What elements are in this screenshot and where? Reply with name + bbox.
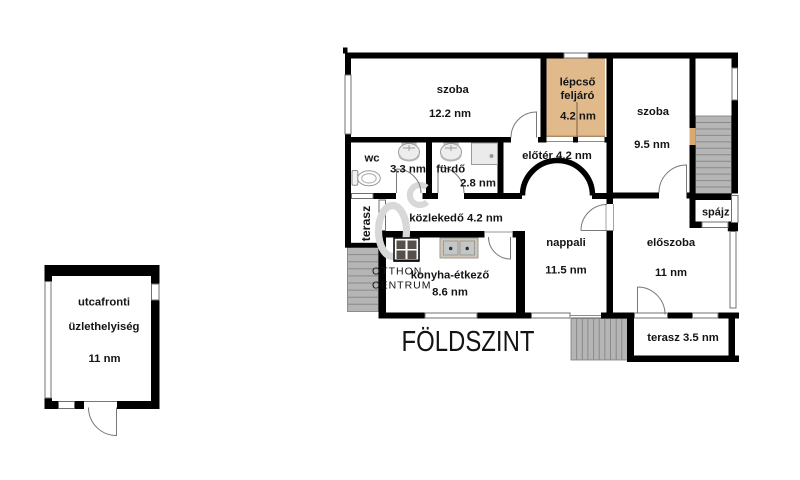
svg-text:12.2 nm: 12.2 nm	[429, 108, 471, 120]
svg-text:előtér 4.2 nm: előtér 4.2 nm	[522, 150, 592, 162]
svg-text:terasz 3.5 nm: terasz 3.5 nm	[647, 332, 719, 344]
svg-text:terasz: terasz	[359, 206, 373, 242]
svg-text:közlekedő 4.2 nm: közlekedő 4.2 nm	[409, 213, 503, 225]
svg-text:11 nm: 11 nm	[88, 353, 120, 365]
svg-text:nappali: nappali	[546, 237, 586, 249]
svg-text:szoba: szoba	[437, 84, 470, 96]
svg-text:spájz: spájz	[702, 207, 730, 219]
svg-text:4.2 nm: 4.2 nm	[560, 111, 596, 123]
svg-text:utcafronti: utcafronti	[78, 297, 130, 309]
svg-text:lépcső: lépcső	[560, 77, 596, 89]
svg-text:szoba: szoba	[637, 106, 670, 118]
svg-text:fürdő: fürdő	[436, 164, 465, 176]
svg-text:előszoba: előszoba	[647, 237, 696, 249]
svg-text:üzlethelyiség: üzlethelyiség	[69, 321, 140, 333]
svg-text:wc: wc	[363, 153, 379, 165]
svg-text:3.3 nm: 3.3 nm	[390, 164, 426, 176]
svg-text:2.8 nm: 2.8 nm	[460, 178, 496, 190]
svg-text:11 nm: 11 nm	[655, 267, 687, 279]
svg-text:11.5 nm: 11.5 nm	[545, 265, 586, 277]
svg-text:konyha-étkező: konyha-étkező	[411, 270, 490, 282]
svg-text:8.6 nm: 8.6 nm	[432, 287, 468, 299]
svg-text:9.5 nm: 9.5 nm	[634, 139, 670, 151]
svg-text:feljáró: feljáró	[561, 90, 595, 102]
svg-text:FÖLDSZINT: FÖLDSZINT	[402, 326, 535, 358]
